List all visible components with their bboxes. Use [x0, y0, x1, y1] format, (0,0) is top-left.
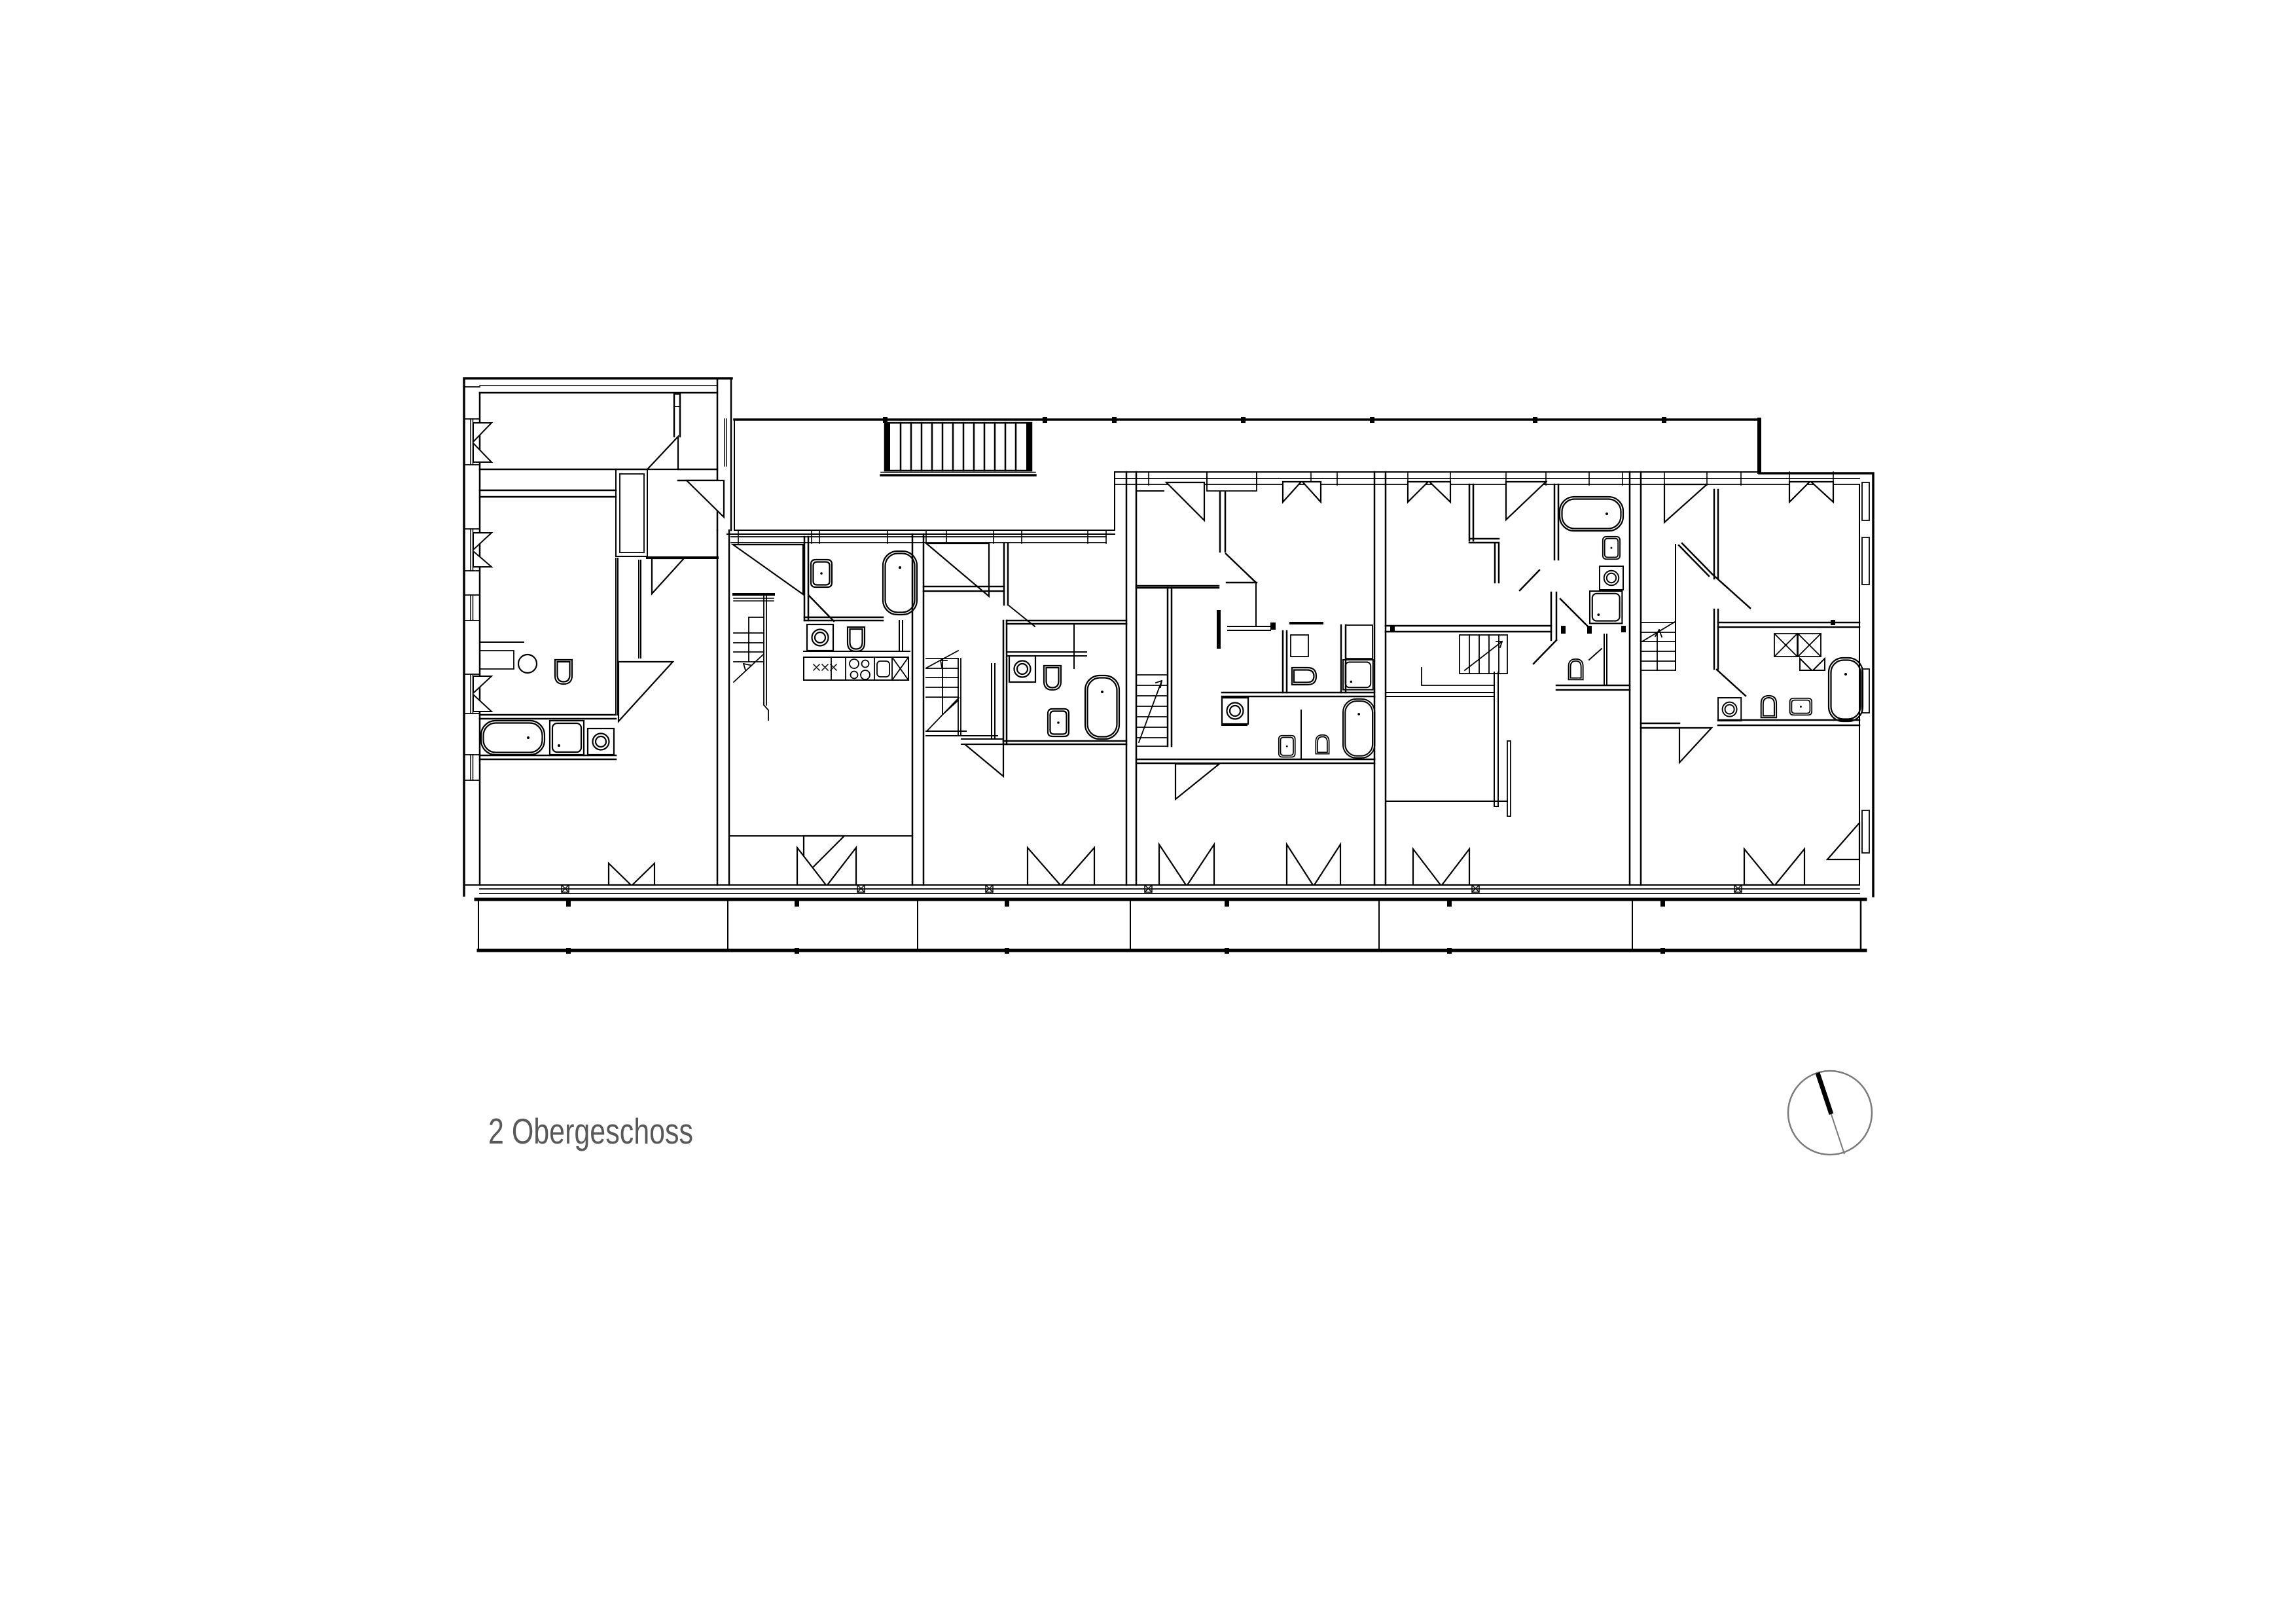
svg-text:2 Obergeschoss: 2 Obergeschoss	[488, 1111, 693, 1151]
